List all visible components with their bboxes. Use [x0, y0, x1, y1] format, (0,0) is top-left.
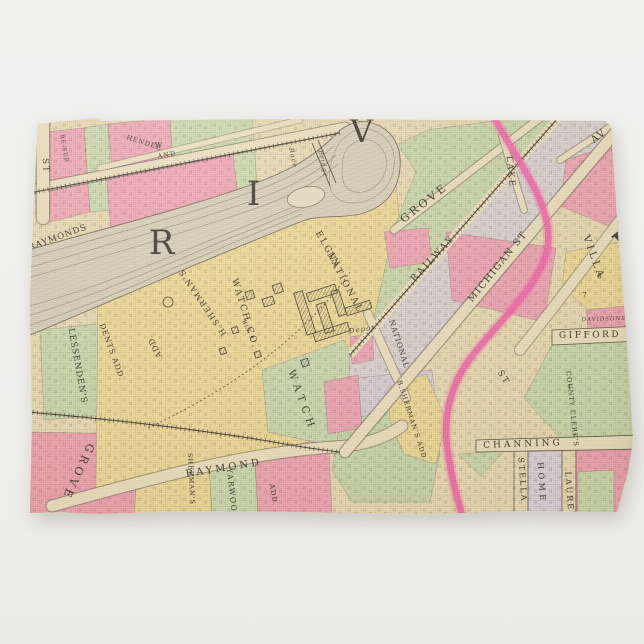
label-add-campus: ADD.: [146, 333, 164, 359]
label-st-left: ST: [40, 158, 50, 174]
label-channing: CHANNING: [483, 439, 563, 451]
label-depot: Depot: [349, 325, 376, 336]
river-letter-v: V: [350, 115, 374, 147]
map-labels: R I V ELGIN NATIONAL WATCH CO. H.SHERMAN…: [0, 0, 644, 644]
label-av: AV: [590, 128, 609, 146]
label-raymond-street: RAYMOND: [185, 458, 263, 480]
label-race: Race: [288, 147, 299, 168]
label-railway: RAILWAY: [409, 234, 456, 284]
label-stella: STELLA: [516, 457, 527, 503]
river-letter-r: R: [149, 226, 176, 260]
label-watch-strip: WATCH: [285, 369, 316, 433]
label-dents-add: DENTS ADD.: [98, 322, 126, 381]
label-num-1: 1: [567, 385, 572, 392]
label-laurel: LAUREL: [563, 471, 574, 518]
label-national-co: NATIONAL: [324, 251, 363, 315]
label-and: AND: [157, 150, 176, 160]
label-national-street: NATIONAL: [388, 319, 411, 369]
label-lessendens: LESSENDEN'S: [66, 328, 88, 405]
label-raymonds: RAYMONDS: [28, 223, 89, 252]
label-b-shermans-add: B.SHERMAN'S ADD.: [396, 380, 428, 463]
river-letter-i: I: [247, 177, 261, 211]
label-num-7: 7: [582, 293, 587, 300]
label-home: HOME: [536, 462, 547, 504]
label-gifford: GIFFORD: [559, 331, 621, 341]
kitchen-towel: R I V ELGIN NATIONAL WATCH CO. H.SHERMAN…: [0, 0, 644, 644]
label-num-8: 8: [597, 274, 602, 281]
sheet-letter-fragment: I: [609, 227, 639, 260]
label-h-shermans: H.SHERMAN'S: [178, 267, 229, 337]
label-county-clerks: COUNTY CLERK'S: [565, 371, 579, 447]
label-re-sub: RE-SUB: [58, 134, 68, 163]
label-michigan-street: MICHIGAN ST: [467, 230, 530, 304]
label-st-villa: ST: [495, 369, 510, 387]
label-add-bottom: ADD.: [268, 483, 279, 506]
label-yarwood: YARWOOD: [226, 468, 239, 520]
label-bridge: Bridge: [317, 150, 329, 179]
label-grove-flipped: GROVE: [60, 442, 96, 503]
product-photo-background: R I V ELGIN NATIONAL WATCH CO. H.SHERMAN…: [0, 0, 644, 644]
towel-shadow-wrap: R I V ELGIN NATIONAL WATCH CO. H.SHERMAN…: [0, 0, 644, 644]
label-davidsons-sub: DAVIDSONS SUB: [582, 316, 644, 324]
label-grove-street: GROVE: [398, 181, 450, 225]
label-lake-street: LAKE: [504, 155, 516, 188]
label-shermans-column: SHERMAN'S: [186, 453, 195, 505]
label-w: W: [155, 143, 163, 150]
